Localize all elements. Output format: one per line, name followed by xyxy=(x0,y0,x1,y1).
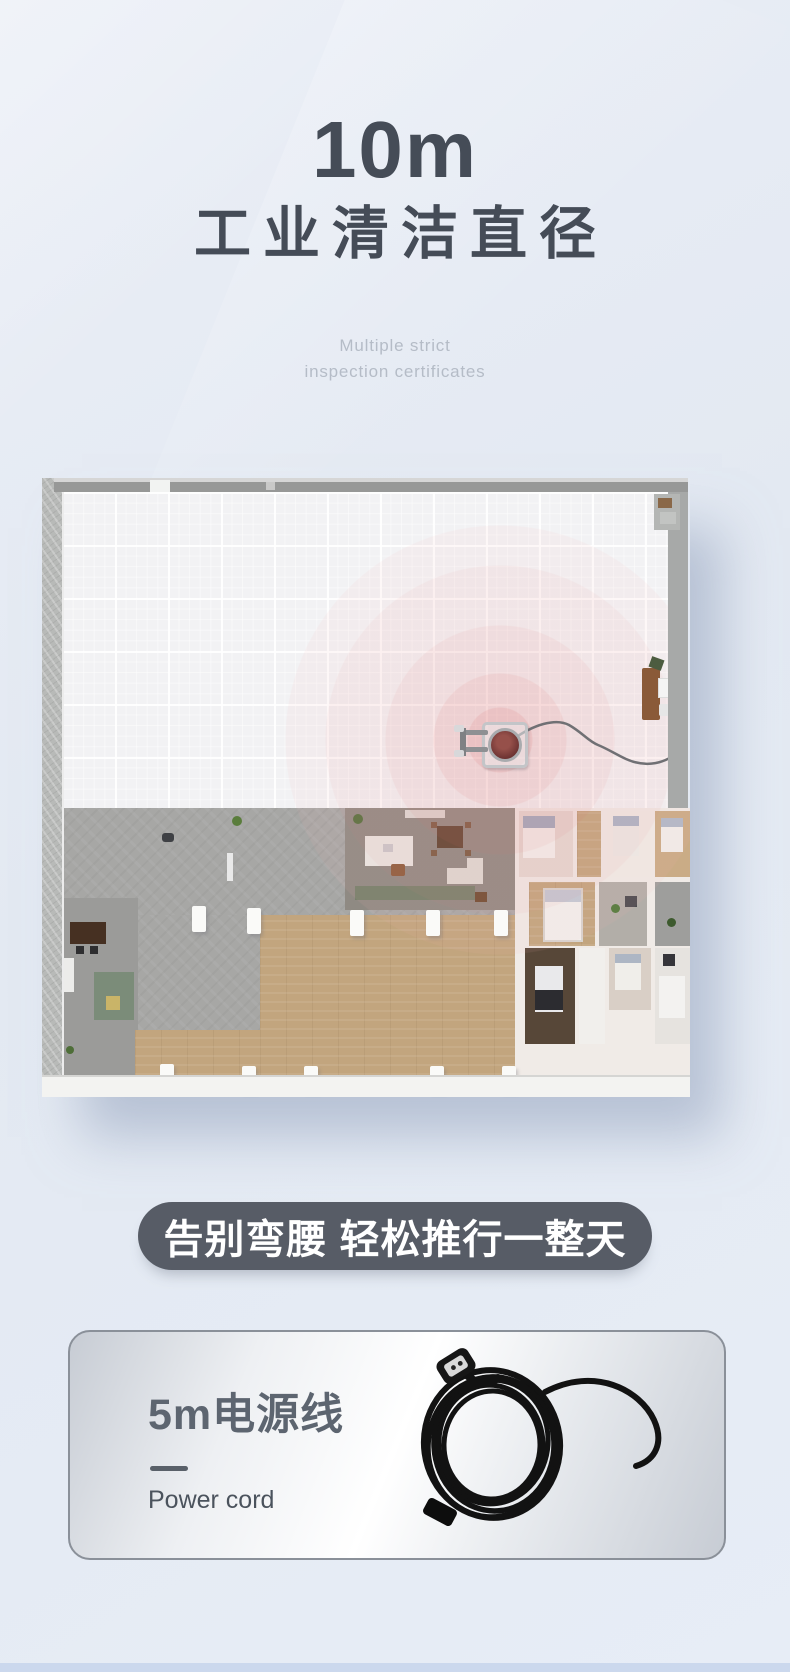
scrubber-brush xyxy=(488,728,522,762)
subtitle-en: Multiple strict inspection certificates xyxy=(0,333,790,384)
card-divider xyxy=(150,1466,188,1471)
headline-section: 10m 工业清洁直径 Multiple strict inspection ce… xyxy=(0,0,790,384)
top-wall xyxy=(54,478,688,492)
feature-banner-label: 告别弯腰 轻松推行一整天 xyxy=(163,1207,626,1265)
corner-shelf xyxy=(654,494,680,530)
bottom-accent-bar xyxy=(0,1663,790,1672)
headline-title: 工业清洁直径 xyxy=(0,206,790,263)
subtitle-line-1: Multiple strict xyxy=(0,333,790,359)
right-wall xyxy=(668,492,688,808)
floor-plan-illustration xyxy=(42,478,690,1095)
feature-banner: 告别弯腰 轻松推行一整天 xyxy=(138,1202,652,1270)
coiled-power-cord-image xyxy=(320,1332,724,1558)
bottom-wall xyxy=(42,1075,690,1097)
headline-value: 10m xyxy=(0,110,790,190)
card-subtitle: Power cord xyxy=(148,1486,274,1515)
product-detail-page: 10m 工业清洁直径 Multiple strict inspection ce… xyxy=(0,0,790,1672)
subtitle-line-2: inspection certificates xyxy=(0,359,790,385)
card-title: 5m电源线 xyxy=(148,1380,344,1442)
left-wall xyxy=(42,478,64,1075)
scrubber-power-cord xyxy=(42,478,690,1095)
door-gap xyxy=(150,480,170,492)
power-cord-card: 5m电源线 Power cord xyxy=(68,1330,726,1560)
